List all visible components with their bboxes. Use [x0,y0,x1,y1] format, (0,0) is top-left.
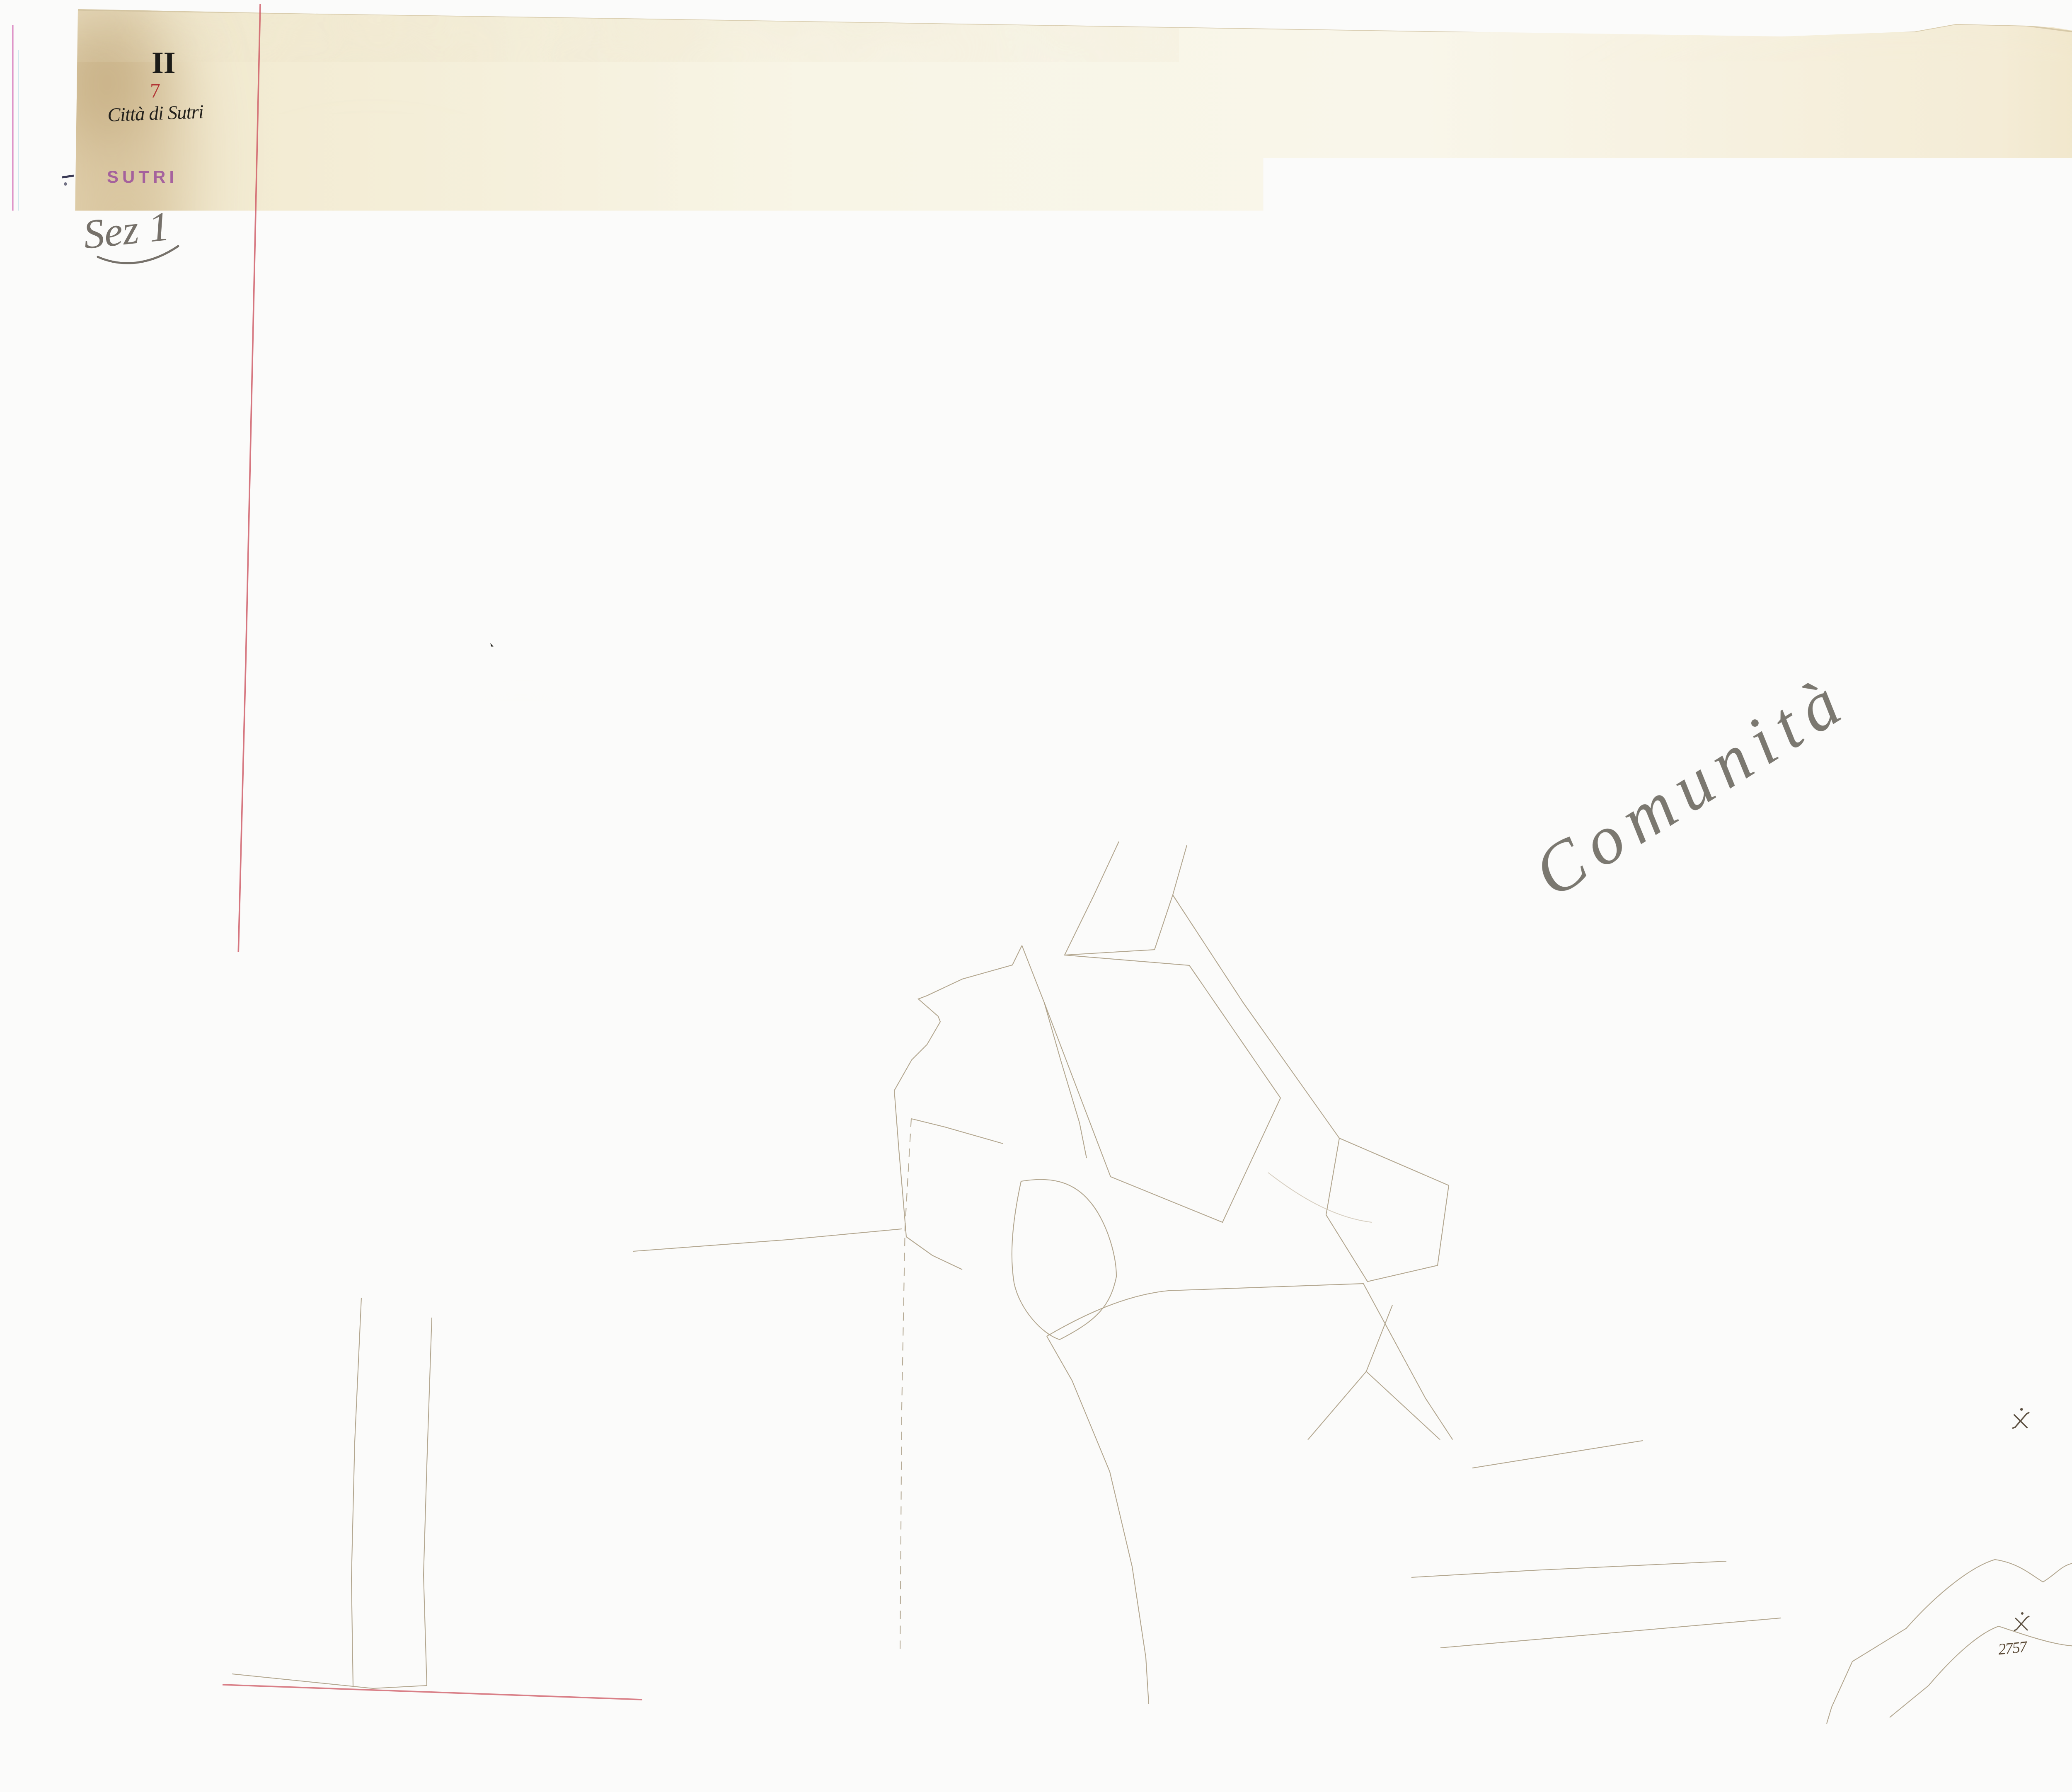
svg-text:rata: rata [1173,1057,1201,1076]
svg-text:1225: 1225 [977,1109,1007,1129]
svg-text:2535: 2535 [379,1547,407,1564]
svg-text:2528: 2528 [1373,1155,1410,1176]
svg-text:A: A [1384,1177,1398,1200]
svg-text:2754: 2754 [1488,1599,1517,1616]
svg-text:Sez 1: Sez 1 [81,203,172,258]
svg-text:2528: 2528 [1233,1228,1262,1245]
svg-text:2753: 2753 [1474,1524,1503,1542]
svg-text:2538: 2538 [496,1308,525,1325]
svg-text:1228: 1228 [1182,1620,1213,1640]
svg-text:B: B [1111,940,1123,962]
svg-text:1227: 1227 [1320,1516,1351,1536]
svg-text:1388: 1388 [469,1122,498,1140]
svg-text:2755: 2755 [1481,1645,1509,1663]
svg-text:Città di Sutri: Città di Sutri [107,101,204,126]
svg-text:1223: 1223 [1099,917,1134,937]
svg-text:7: 7 [150,79,160,102]
svg-text:1223: 1223 [1526,1251,1554,1268]
svg-text:1226: 1226 [1046,1252,1077,1272]
svg-text:rata: rata [1234,1250,1261,1269]
svg-text:1385: 1385 [236,1624,266,1644]
svg-text:1229: 1229 [992,1508,1021,1525]
svg-text:SUTRI: SUTRI [107,167,178,186]
svg-text:1224: 1224 [1173,1035,1201,1052]
svg-text:2757: 2757 [1997,1638,2029,1658]
svg-text:1: 1 [769,1406,777,1425]
svg-text:2: 2 [1002,1531,1011,1549]
svg-text:1221: 1221 [1999,1432,2029,1452]
svg-text:A: A [1276,989,1290,1013]
svg-text:2536: 2536 [274,1403,303,1421]
svg-text:1387: 1387 [454,1554,485,1574]
svg-text:rata: rata [1527,1274,1554,1292]
svg-text:II: II [152,46,176,80]
svg-text:1229: 1229 [759,1384,788,1400]
svg-text:1391: 1391 [263,1212,293,1233]
svg-text:2537: 2537 [491,933,523,953]
svg-text:1224: 1224 [1222,966,1268,994]
